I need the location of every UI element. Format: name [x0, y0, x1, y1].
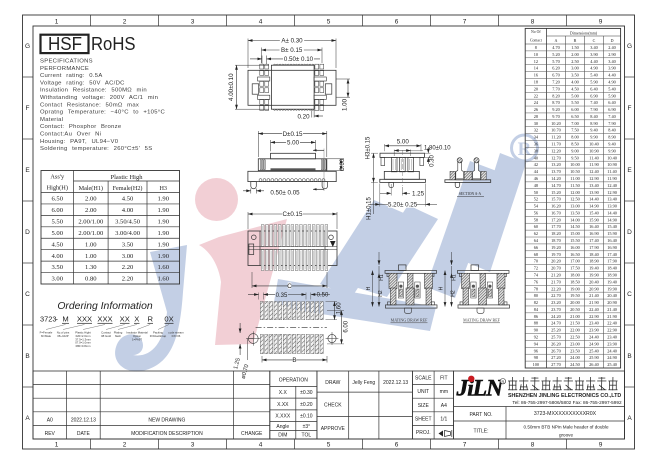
svg-text:Housing: PA9T, UL94−V0: Housing: PA9T, UL94−V0: [40, 139, 119, 145]
svg-text:21.40: 21.40: [589, 293, 599, 298]
svg-text:C: C: [593, 38, 596, 43]
svg-text:24.70: 24.70: [551, 321, 561, 326]
svg-text:flash: flash: [115, 334, 121, 338]
svg-text:72: 72: [534, 266, 538, 271]
svg-text:16.70: 16.70: [551, 210, 561, 215]
svg-text:20.70: 20.70: [551, 266, 561, 271]
svg-text:2.20: 2.20: [122, 276, 134, 283]
svg-text:3.00: 3.00: [51, 276, 63, 283]
svg-text:23.40: 23.40: [607, 335, 617, 340]
svg-text:0.50± 0.05: 0.50± 0.05: [270, 189, 300, 196]
svg-text:08:Gold: 08:Gold: [101, 334, 111, 338]
svg-text:PERFORMANCE: PERFORMANCE: [40, 66, 89, 72]
svg-text:3723-MXXXXXXXXXXR0X: 3723-MXXXXXXXXXXR0X: [534, 411, 597, 417]
svg-text:20.00: 20.00: [570, 300, 580, 305]
svg-text:17.20: 17.20: [551, 217, 561, 222]
svg-text:24.90: 24.90: [607, 355, 617, 360]
svg-text:6.00: 6.00: [571, 107, 579, 112]
svg-text:7.00: 7.00: [571, 121, 579, 126]
svg-text:7.40: 7.40: [590, 100, 598, 105]
svg-text:92: 92: [534, 335, 538, 340]
svg-text:20.20: 20.20: [551, 259, 561, 264]
svg-text:2.50: 2.50: [571, 59, 579, 64]
svg-text:Opratng Temperature: −40°C to: Opratng Temperature: −40°C to +105°C: [40, 110, 165, 116]
svg-text:Dimensions(mm): Dimensions(mm): [570, 32, 598, 36]
svg-text:26.40: 26.40: [589, 362, 599, 367]
svg-text:10.00: 10.00: [570, 162, 580, 167]
svg-text:3.00/4.00: 3.00/4.00: [115, 230, 141, 237]
svg-text:Tel: 86-755-2997-5806/5802 Fa: Tel: 86-755-2997-5806/5802 Fax: 86-755-2…: [512, 400, 622, 405]
svg-text:A0: A0: [47, 418, 53, 424]
svg-text:17.70: 17.70: [551, 224, 561, 229]
svg-text:D: D: [611, 38, 614, 43]
svg-text:19.90: 19.90: [607, 286, 617, 291]
svg-text:Soldering temperature: 260°C±5: Soldering temperature: 260°C±5' 5S: [40, 146, 152, 152]
svg-text:20.40: 20.40: [607, 293, 617, 298]
svg-text:Material: Material: [40, 117, 63, 123]
svg-text:68: 68: [534, 252, 538, 257]
svg-text:14.00: 14.00: [570, 217, 580, 222]
svg-text:14.90: 14.90: [607, 217, 617, 222]
svg-text:1=PA9T: 1=PA9T: [132, 337, 142, 341]
svg-text:15.40: 15.40: [589, 210, 599, 215]
svg-text:14.20: 14.20: [551, 176, 561, 181]
svg-text:25.40: 25.40: [589, 348, 599, 353]
svg-text:5.90: 5.90: [590, 79, 598, 84]
svg-text:Plastic High: Plastic High: [111, 174, 144, 181]
svg-text:17.00: 17.00: [570, 259, 580, 264]
svg-text:3.50: 3.50: [571, 73, 579, 78]
svg-text:4.70: 4.70: [552, 45, 560, 50]
svg-text:4.40: 4.40: [608, 73, 616, 78]
svg-text:23.90: 23.90: [589, 328, 599, 333]
svg-text:0.60: 0.60: [339, 158, 346, 171]
svg-text:7.90: 7.90: [590, 107, 598, 112]
svg-text:DRAW: DRAW: [325, 380, 340, 386]
svg-text:SPECIFICATIONS: SPECIFICATIONS: [40, 59, 93, 65]
svg-text:A: A: [555, 38, 558, 43]
svg-text:0.50mm BTB NPin Male heade: 0.50mm BTB NPin Male header of double: [523, 425, 608, 430]
svg-text:8: 8: [531, 442, 535, 449]
svg-text:10.20: 10.20: [551, 121, 561, 126]
svg-text:18.40: 18.40: [607, 266, 617, 271]
svg-text:8.70: 8.70: [552, 100, 560, 105]
svg-text:11.50: 11.50: [570, 183, 580, 188]
svg-text:B: B: [292, 357, 296, 364]
svg-text:DATE: DATE: [77, 431, 91, 437]
svg-text:RoHS: RoHS: [91, 33, 136, 54]
svg-text:SHENZHEN JINLING ELECTRONICS C: SHENZHEN JINLING ELECTRONICS CO.,LTD: [508, 393, 621, 399]
svg-text:18.20: 18.20: [551, 231, 561, 236]
svg-text:14.90: 14.90: [589, 204, 599, 209]
svg-text:10: 10: [534, 52, 538, 57]
svg-text:Angle: Angle: [276, 424, 289, 430]
svg-text:±3°: ±3°: [303, 424, 311, 430]
svg-text:0.20: 0.20: [297, 113, 310, 120]
svg-text:1.60: 1.60: [157, 264, 169, 271]
svg-text:16.90: 16.90: [607, 245, 617, 250]
svg-text:R=Reel&Cap: R=Reel&Cap: [150, 334, 167, 338]
svg-text:H3±0.15: H3±0.15: [366, 136, 372, 159]
svg-text:1.00: 1.00: [85, 253, 97, 260]
svg-text:5.00: 5.00: [51, 230, 63, 237]
svg-text:G: G: [627, 43, 632, 50]
svg-text:25.70: 25.70: [551, 335, 561, 340]
svg-text:±0.20: ±0.20: [300, 402, 313, 408]
svg-text:4.90: 4.90: [590, 66, 598, 71]
svg-text:14.50: 14.50: [570, 224, 580, 229]
svg-text:HSF: HSF: [48, 33, 82, 54]
svg-text:D: D: [25, 229, 30, 236]
svg-text:080=0.8mm: 080=0.8mm: [76, 344, 92, 348]
svg-text:100: 100: [533, 362, 539, 367]
svg-text:No Of: No Of: [531, 30, 541, 34]
svg-text:2.00/1.00: 2.00/1.00: [78, 230, 104, 237]
svg-text:MATING DRAW REF: MATING DRAW REF: [391, 317, 428, 322]
svg-text:1.90: 1.90: [157, 230, 169, 237]
svg-text:70: 70: [534, 259, 538, 264]
svg-text:11.90: 11.90: [589, 162, 599, 167]
svg-text:NEW DRAWING: NEW DRAWING: [148, 418, 185, 424]
svg-text:2.90: 2.90: [608, 52, 616, 57]
svg-text:17.40: 17.40: [589, 238, 599, 243]
svg-text:3.40: 3.40: [608, 59, 616, 64]
svg-text:9.40: 9.40: [590, 128, 598, 133]
svg-text:1/1: 1/1: [440, 416, 447, 422]
svg-text:1.90: 1.90: [157, 253, 169, 260]
svg-text:11.00: 11.00: [570, 176, 580, 181]
svg-text:2.20: 2.20: [122, 264, 134, 271]
svg-text:22.40: 22.40: [589, 307, 599, 312]
svg-text:High(H): High(H): [47, 185, 68, 192]
svg-text:SCALE: SCALE: [415, 376, 432, 382]
svg-text:Contact: Phosphor Bronze: Contact: Phosphor Bronze: [40, 124, 122, 130]
svg-text:3.50: 3.50: [122, 241, 134, 248]
svg-text:10.90: 10.90: [607, 162, 617, 167]
svg-text:1: 1: [55, 442, 59, 449]
svg-text:20.40: 20.40: [589, 279, 599, 284]
svg-text:TOL: TOL: [302, 433, 312, 439]
svg-text:R: R: [148, 315, 154, 324]
svg-text:C: C: [627, 291, 632, 298]
svg-text:2.00: 2.00: [85, 196, 97, 203]
svg-text:SHEET: SHEET: [415, 416, 432, 422]
svg-text:X.XX: X.XX: [277, 402, 289, 408]
svg-text:8.40: 8.40: [590, 114, 598, 119]
svg-text:E: E: [627, 167, 632, 174]
svg-text:20.90: 20.90: [589, 286, 599, 291]
svg-text:±0.30: ±0.30: [300, 390, 313, 396]
svg-text:5.70: 5.70: [552, 59, 560, 64]
svg-text:R: R: [518, 139, 532, 160]
svg-text:15.90: 15.90: [607, 231, 617, 236]
svg-text:2.00: 2.00: [85, 207, 97, 214]
svg-text:19.20: 19.20: [551, 245, 561, 250]
svg-text:6.40: 6.40: [590, 86, 598, 91]
svg-text:12.00: 12.00: [570, 190, 580, 195]
svg-text:82: 82: [534, 300, 538, 305]
svg-text:8.50: 8.50: [571, 142, 579, 147]
svg-text:XXX: XXX: [77, 315, 92, 324]
svg-text:±0.10: ±0.10: [300, 414, 313, 420]
svg-text:12.40: 12.40: [607, 183, 617, 188]
svg-text:8: 8: [531, 19, 535, 26]
svg-text:3.00: 3.00: [571, 66, 579, 71]
svg-text:1.90: 1.90: [157, 241, 169, 248]
svg-text:19.40: 19.40: [607, 279, 617, 284]
svg-text:5.90: 5.90: [608, 93, 616, 98]
svg-text:OPERATION: OPERATION: [279, 378, 308, 384]
svg-text:15.70: 15.70: [551, 197, 561, 202]
svg-text:3.00: 3.00: [122, 253, 134, 260]
svg-text:C: C: [25, 291, 30, 298]
svg-text:1.00: 1.00: [342, 98, 349, 111]
svg-text:18.50: 18.50: [570, 279, 580, 284]
svg-text:13.70: 13.70: [551, 169, 561, 174]
svg-text:90: 90: [534, 328, 538, 333]
svg-text:H2: H2: [378, 290, 384, 297]
svg-text:X: X: [134, 315, 139, 324]
svg-text:B: B: [574, 38, 577, 43]
svg-text:MATING DRAW REF: MATING DRAW REF: [463, 317, 500, 322]
svg-text:4.00: 4.00: [122, 207, 134, 214]
svg-text:8.90: 8.90: [608, 135, 616, 140]
svg-text:6: 6: [395, 442, 399, 449]
svg-text:TITLE:: TITLE:: [473, 429, 488, 435]
svg-text:UNIT: UNIT: [417, 389, 429, 395]
svg-text:Contact:Au Over Ni: Contact:Au Over Ni: [40, 132, 101, 138]
svg-text:FIT: FIT: [440, 376, 448, 382]
svg-text:18.90: 18.90: [607, 272, 617, 277]
svg-text:9: 9: [599, 19, 603, 26]
svg-text:4.90: 4.90: [608, 79, 616, 84]
svg-text:28: 28: [534, 114, 538, 119]
svg-text:24.40: 24.40: [607, 348, 617, 353]
svg-text:11.40: 11.40: [607, 169, 617, 174]
svg-text:3.90: 3.90: [608, 66, 616, 71]
svg-text:21.20: 21.20: [551, 272, 561, 277]
svg-text:JiLN: JiLN: [456, 376, 505, 402]
svg-text:13.40: 13.40: [589, 183, 599, 188]
svg-text:B± 0.15: B± 0.15: [281, 47, 303, 54]
svg-text:23.20: 23.20: [551, 300, 561, 305]
svg-text:9: 9: [599, 442, 603, 449]
svg-text:D: D: [627, 229, 632, 236]
svg-text:24.40: 24.40: [589, 335, 599, 340]
svg-text:M: M: [62, 315, 68, 324]
svg-text:5.40: 5.40: [608, 86, 616, 91]
svg-text:mm: mm: [440, 389, 448, 395]
svg-text:17.50: 17.50: [570, 266, 580, 271]
svg-text:REV: REV: [45, 431, 56, 437]
svg-text:16.90: 16.90: [589, 231, 599, 236]
svg-text:3: 3: [191, 442, 195, 449]
svg-text:5.40: 5.40: [590, 73, 598, 78]
svg-text:H1: H1: [379, 274, 385, 281]
svg-text:1.00: 1.00: [85, 241, 97, 248]
svg-text:23.00: 23.00: [570, 341, 580, 346]
svg-text:1.60: 1.60: [157, 276, 169, 283]
svg-text:4.00±0.10: 4.00±0.10: [228, 73, 235, 101]
svg-text:2: 2: [123, 19, 127, 26]
svg-text:9.20: 9.20: [552, 107, 560, 112]
svg-text:CHANGE: CHANGE: [241, 431, 263, 437]
svg-text:H2: H2: [451, 290, 457, 297]
svg-text:15.40: 15.40: [607, 224, 617, 229]
svg-text:13.20: 13.20: [551, 162, 561, 167]
svg-text:0X: 0X: [164, 315, 173, 324]
svg-text:5: 5: [327, 442, 331, 449]
svg-text:1.90: 1.90: [157, 218, 169, 225]
svg-text:G: G: [25, 43, 30, 50]
svg-text:Male(H1): Male(H1): [79, 185, 103, 192]
svg-text:22.20: 22.20: [551, 286, 561, 291]
svg-text:H1: H1: [452, 274, 458, 281]
svg-text:9.40: 9.40: [608, 142, 616, 147]
svg-text:8.00: 8.00: [571, 135, 579, 140]
svg-text:7.50: 7.50: [571, 128, 579, 133]
svg-text:10.40: 10.40: [589, 142, 599, 147]
svg-text:10.50: 10.50: [570, 169, 580, 174]
svg-text:2022.12.13: 2022.12.13: [71, 418, 96, 424]
svg-text:16.40: 16.40: [607, 238, 617, 243]
svg-text:9.50: 9.50: [571, 155, 579, 160]
svg-text:13.00: 13.00: [570, 204, 580, 209]
svg-text:5.20± 0.25: 5.20± 0.25: [388, 201, 418, 208]
svg-text:PART NO.: PART NO.: [469, 412, 492, 418]
svg-text:24.20: 24.20: [551, 314, 561, 319]
svg-text:Contact: Contact: [530, 39, 543, 43]
svg-text:21.90: 21.90: [607, 314, 617, 319]
svg-text:30: 30: [534, 121, 538, 126]
svg-text:Ordering Information: Ordering Information: [57, 301, 153, 312]
svg-text:42: 42: [534, 162, 538, 167]
svg-text:MODIFICATION DESCRIPTION: MODIFICATION DESCRIPTION: [131, 431, 203, 437]
svg-text:14.40: 14.40: [589, 197, 599, 202]
svg-text:13.40: 13.40: [607, 197, 617, 202]
svg-text:PROJ.: PROJ.: [416, 430, 431, 436]
svg-text:13.90: 13.90: [589, 190, 599, 195]
svg-text:13.90: 13.90: [607, 204, 617, 209]
svg-text:18: 18: [534, 79, 538, 84]
svg-text:23.40: 23.40: [589, 321, 599, 326]
svg-text:C±0.15: C±0.15: [283, 211, 303, 218]
svg-text:0.50± 0.10: 0.50± 0.10: [284, 56, 314, 63]
svg-text:22.70: 22.70: [551, 293, 561, 298]
svg-text:6.50: 6.50: [571, 114, 579, 119]
svg-text:18.90: 18.90: [589, 259, 599, 264]
svg-text:7.90: 7.90: [608, 121, 616, 126]
svg-text:6.40: 6.40: [608, 100, 616, 105]
svg-text:17.40: 17.40: [607, 252, 617, 257]
svg-text:12.90: 12.90: [607, 190, 617, 195]
svg-text:18.40: 18.40: [589, 252, 599, 257]
svg-text:8.40: 8.40: [608, 128, 616, 133]
svg-text:H3: H3: [159, 185, 167, 192]
svg-text:11.90: 11.90: [607, 176, 617, 181]
svg-text:25.40: 25.40: [607, 362, 617, 367]
svg-text:8: 8: [535, 45, 537, 50]
svg-text:7.70: 7.70: [552, 86, 560, 91]
svg-text:20.90: 20.90: [607, 300, 617, 305]
svg-text:0.30: 0.30: [430, 155, 436, 167]
svg-text:21.40: 21.40: [607, 307, 617, 312]
svg-text:24.00: 24.00: [570, 355, 580, 360]
svg-text:26.70: 26.70: [551, 348, 561, 353]
svg-text:15.50: 15.50: [570, 238, 580, 243]
svg-text:1.30: 1.30: [85, 264, 97, 271]
svg-text:19.50: 19.50: [570, 293, 580, 298]
svg-text:5.50: 5.50: [51, 218, 63, 225]
svg-text:19.40: 19.40: [589, 266, 599, 271]
svg-text:50: 50: [534, 190, 538, 195]
svg-text:10.40: 10.40: [607, 155, 617, 160]
svg-text:6.90: 6.90: [590, 93, 598, 98]
svg-text:10.70: 10.70: [551, 128, 561, 133]
svg-text:6.90: 6.90: [608, 107, 616, 112]
svg-text:17.90: 17.90: [589, 245, 599, 250]
svg-text:7: 7: [463, 442, 467, 449]
svg-text:24.90: 24.90: [589, 341, 599, 346]
svg-text:40: 40: [534, 155, 538, 160]
svg-text:4.50: 4.50: [51, 241, 63, 248]
svg-text:3723: 3723: [40, 315, 56, 324]
svg-text:4.50: 4.50: [571, 86, 579, 91]
svg-text:20: 20: [534, 86, 538, 91]
svg-text:19.00: 19.00: [570, 286, 580, 291]
svg-text:6.00: 6.00: [51, 207, 63, 214]
svg-text:98: 98: [534, 355, 538, 360]
svg-text:A: A: [25, 415, 30, 422]
svg-text:4: 4: [259, 442, 263, 449]
svg-text:4.50: 4.50: [122, 196, 134, 203]
svg-text:H: H: [366, 286, 372, 290]
svg-text:SECTION A-A: SECTION A-A: [459, 192, 482, 196]
svg-text:X.XXX: X.XXX: [275, 414, 290, 420]
svg-text:1.90: 1.90: [157, 196, 169, 203]
svg-text:F: F: [26, 105, 30, 112]
svg-text:3.50: 3.50: [51, 264, 63, 271]
svg-text:3.50/4.50: 3.50/4.50: [115, 218, 141, 225]
svg-text:19.90: 19.90: [589, 272, 599, 277]
svg-text:32: 32: [534, 128, 538, 133]
svg-text:18.00: 18.00: [570, 272, 580, 277]
svg-text:9.00: 9.00: [571, 148, 579, 153]
svg-text:60: 60: [534, 224, 538, 229]
svg-text:DIM: DIM: [278, 433, 287, 439]
svg-text:16.40: 16.40: [589, 224, 599, 229]
svg-text:62: 62: [534, 231, 538, 236]
svg-text:25.20: 25.20: [551, 328, 561, 333]
svg-text:11.70: 11.70: [551, 142, 561, 147]
svg-text:2.00/1.00: 2.00/1.00: [78, 218, 104, 225]
svg-text:18.70: 18.70: [551, 238, 561, 243]
svg-text:23.70: 23.70: [551, 307, 561, 312]
svg-text:13.50: 13.50: [570, 210, 580, 215]
svg-text:16.00: 16.00: [570, 245, 580, 250]
svg-text:4.40: 4.40: [590, 59, 598, 64]
svg-text:5.00: 5.00: [287, 140, 300, 147]
svg-text:8.20: 8.20: [552, 93, 560, 98]
svg-text:A± 0.30: A± 0.30: [281, 38, 303, 45]
svg-text:21.90: 21.90: [589, 300, 599, 305]
svg-text:5.00: 5.00: [397, 139, 410, 146]
svg-text:Ass'y: Ass'y: [50, 174, 65, 181]
svg-text:Voltage rating: 50V AC/DC: Voltage rating: 50V AC/DC: [40, 80, 125, 86]
svg-text:D±0.15: D±0.15: [283, 131, 303, 138]
svg-text:7.20: 7.20: [552, 79, 560, 84]
svg-text:9.90: 9.90: [608, 148, 616, 153]
